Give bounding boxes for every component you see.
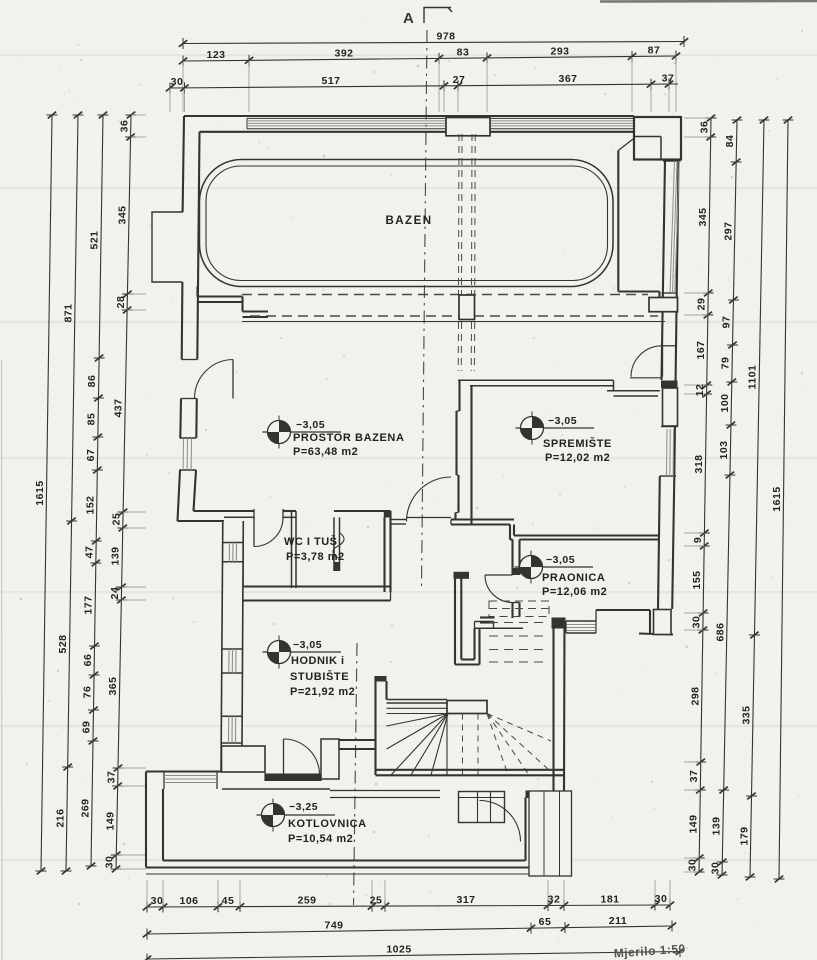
svg-text:139: 139	[710, 816, 722, 835]
svg-text:9: 9	[692, 537, 704, 543]
svg-text:30: 30	[710, 862, 722, 875]
svg-text:345: 345	[117, 205, 129, 224]
svg-text:1615: 1615	[34, 480, 46, 505]
svg-text:528: 528	[57, 634, 69, 653]
svg-text:30: 30	[687, 859, 699, 872]
svg-text:259: 259	[297, 895, 316, 907]
svg-text:293: 293	[550, 45, 569, 57]
svg-text:106: 106	[179, 895, 198, 907]
svg-text:149: 149	[104, 811, 116, 830]
svg-text:37: 37	[688, 770, 700, 783]
svg-text:12: 12	[694, 384, 706, 397]
svg-text:139: 139	[110, 546, 122, 565]
svg-text:24: 24	[109, 587, 121, 600]
svg-text:871: 871	[62, 303, 74, 322]
svg-text:P=3,78 m2: P=3,78 m2	[286, 551, 345, 563]
svg-text:318: 318	[693, 454, 705, 473]
svg-text:517: 517	[321, 75, 340, 87]
svg-text:36: 36	[118, 120, 130, 133]
svg-text:P=63,48 m2: P=63,48 m2	[293, 446, 358, 458]
svg-text:−3,05: −3,05	[546, 554, 575, 566]
svg-text:30: 30	[151, 895, 164, 907]
svg-text:103: 103	[718, 440, 730, 459]
svg-text:−3,05: −3,05	[293, 639, 322, 651]
svg-text:P=10,54 m2: P=10,54 m2	[288, 833, 353, 845]
svg-text:BAZEN: BAZEN	[385, 215, 432, 227]
svg-text:28: 28	[115, 296, 127, 309]
svg-text:345: 345	[697, 207, 709, 226]
svg-text:32: 32	[548, 894, 561, 906]
svg-text:76: 76	[81, 686, 93, 699]
svg-text:65: 65	[539, 916, 552, 928]
svg-text:45: 45	[222, 895, 235, 907]
svg-text:216: 216	[54, 808, 66, 827]
svg-text:1615: 1615	[771, 486, 783, 511]
svg-text:25: 25	[370, 894, 383, 906]
svg-text:P=12,02 m2: P=12,02 m2	[545, 452, 610, 464]
svg-text:86: 86	[86, 375, 98, 388]
svg-text:A: A	[403, 10, 415, 27]
svg-text:87: 87	[648, 44, 661, 56]
svg-text:177: 177	[83, 595, 95, 614]
svg-text:686: 686	[714, 622, 726, 641]
svg-text:152: 152	[84, 495, 96, 514]
svg-text:297: 297	[722, 221, 734, 240]
svg-text:PRAONICA: PRAONICA	[542, 572, 605, 584]
svg-text:392: 392	[334, 48, 353, 60]
svg-text:269: 269	[79, 798, 91, 817]
svg-text:30: 30	[171, 76, 184, 88]
svg-text:84: 84	[724, 135, 736, 148]
svg-text:749: 749	[324, 919, 343, 931]
svg-text:181: 181	[600, 893, 619, 905]
svg-text:211: 211	[609, 915, 627, 927]
svg-text:298: 298	[689, 686, 701, 705]
svg-text:SPREMIŠTE: SPREMIŠTE	[543, 437, 612, 450]
svg-text:123: 123	[206, 49, 225, 61]
svg-text:335: 335	[740, 705, 752, 724]
svg-text:HODNIK i: HODNIK i	[291, 655, 345, 667]
svg-text:−3,05: −3,05	[548, 415, 577, 427]
svg-text:STUBIŠTE: STUBIŠTE	[290, 670, 349, 683]
svg-text:30: 30	[104, 856, 116, 869]
svg-text:37: 37	[105, 771, 117, 784]
svg-text:P=21,92 m2: P=21,92 m2	[290, 686, 355, 698]
svg-text:P=12,06 m2: P=12,06 m2	[542, 586, 607, 598]
svg-text:167: 167	[695, 340, 707, 359]
svg-text:317: 317	[456, 894, 475, 906]
svg-text:69: 69	[81, 721, 93, 734]
svg-text:97: 97	[720, 316, 732, 329]
svg-text:47: 47	[84, 546, 96, 559]
svg-text:−3,25: −3,25	[289, 801, 318, 813]
svg-text:67: 67	[85, 449, 97, 462]
svg-text:521: 521	[89, 230, 101, 249]
svg-text:83: 83	[457, 46, 470, 58]
svg-text:79: 79	[720, 357, 732, 370]
svg-text:149: 149	[687, 814, 699, 833]
svg-text:365: 365	[107, 676, 119, 695]
svg-text:100: 100	[719, 393, 731, 412]
svg-text:PROSTOR BAZENA: PROSTOR BAZENA	[293, 432, 404, 444]
svg-text:155: 155	[691, 570, 703, 589]
svg-text:25: 25	[110, 513, 122, 526]
svg-text:WC I TUŠ: WC I TUŠ	[284, 535, 338, 548]
svg-text:978: 978	[436, 31, 455, 43]
svg-text:66: 66	[82, 654, 94, 667]
svg-text:1101: 1101	[747, 365, 759, 390]
svg-text:1025: 1025	[386, 944, 411, 956]
svg-text:29: 29	[696, 298, 708, 311]
svg-text:36: 36	[698, 121, 710, 134]
svg-text:85: 85	[86, 413, 98, 426]
svg-text:30: 30	[690, 616, 702, 629]
svg-text:437: 437	[113, 398, 125, 417]
svg-text:179: 179	[738, 826, 750, 845]
svg-text:367: 367	[558, 73, 577, 85]
svg-text:30: 30	[655, 893, 668, 905]
svg-text:KOTLOVNICA: KOTLOVNICA	[288, 818, 367, 830]
svg-text:−3,05: −3,05	[296, 419, 325, 431]
svg-text:27: 27	[453, 74, 466, 86]
svg-text:37: 37	[662, 72, 675, 84]
